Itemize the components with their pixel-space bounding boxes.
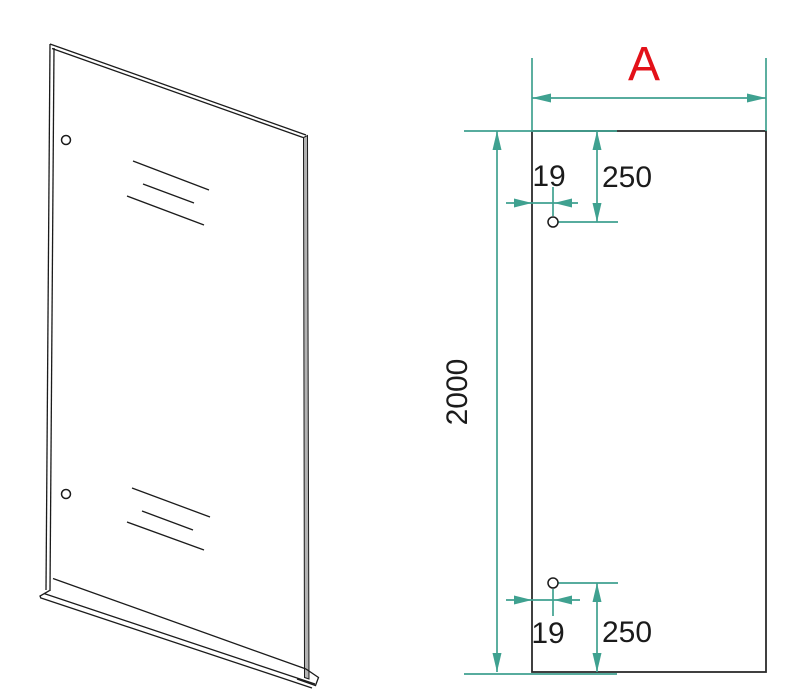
arrowhead-down-icon [593,203,602,222]
top-inset-dim-label: 19 [532,160,565,193]
perspective-view [40,44,319,688]
panel-outline [532,131,766,672]
arrowhead-down-icon [593,653,602,672]
arrowhead-right-icon [747,94,766,103]
arrowhead-left-icon [554,199,572,208]
top-offset-dim-label: 250 [602,161,652,194]
width-label: A [628,38,660,91]
technical-drawing-page: A 2000 19 250 19 250 [0,0,800,698]
arrowhead-right-icon [514,596,532,605]
glass-panel-drawing: A 2000 19 250 19 250 [0,0,800,698]
arrowhead-down-icon [493,653,502,672]
panel-face [46,44,308,678]
arrowhead-left-icon [532,94,551,103]
top-hole [548,217,558,227]
bottom-hole [548,578,558,588]
arrowhead-right-icon [514,199,532,208]
elevation-view: A 2000 19 250 19 250 [441,38,766,674]
perspective-top-hole [62,136,71,145]
arrowhead-up-icon [493,131,502,150]
arrowhead-up-icon [593,583,602,602]
bottom-offset-dim-label: 250 [602,616,652,649]
perspective-bottom-hole [62,490,71,499]
bottom-inset-dim-label: 19 [531,617,564,650]
arrowhead-left-icon [554,596,572,605]
height-dim-label: 2000 [441,359,474,426]
panel-right-edge-face [304,136,310,680]
arrowhead-up-icon [593,131,602,150]
